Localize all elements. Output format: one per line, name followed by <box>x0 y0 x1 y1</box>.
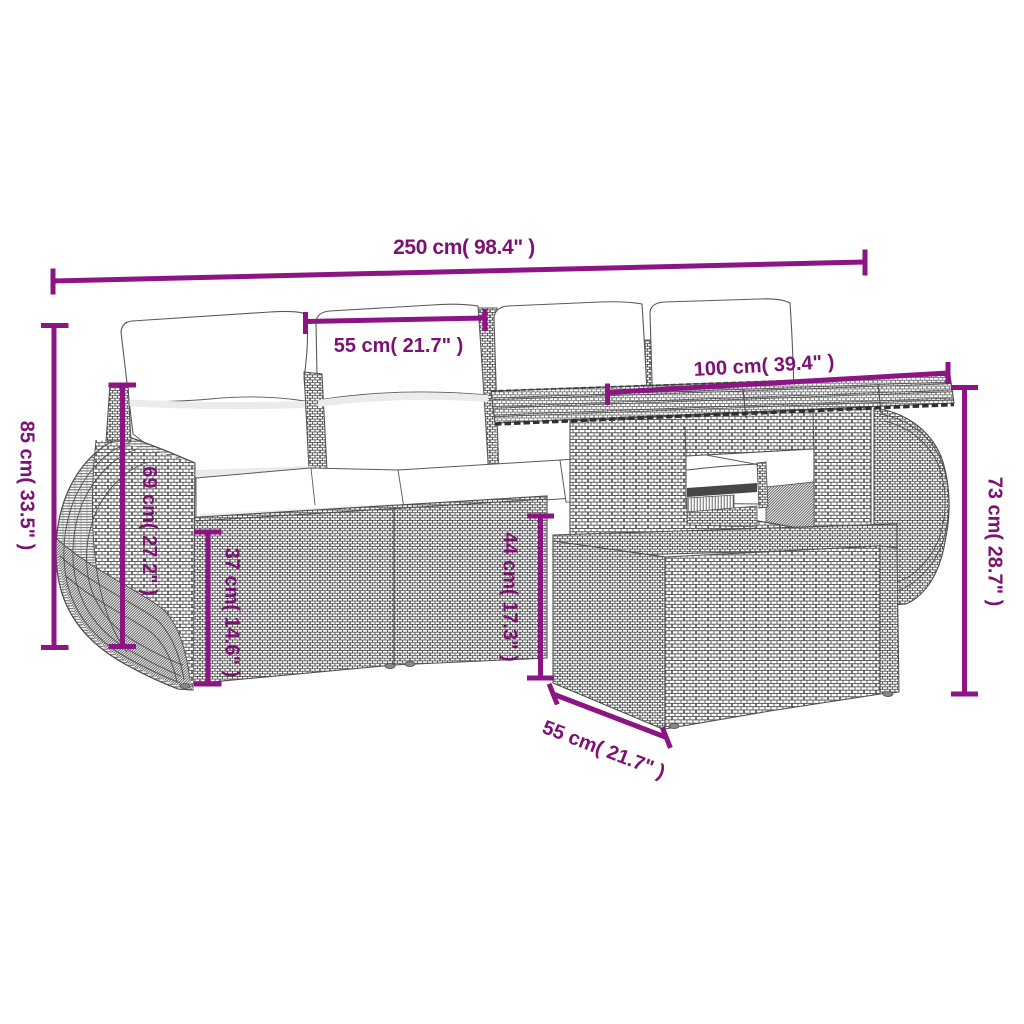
svg-text:250 cm( 98.4" ): 250 cm( 98.4" ) <box>393 236 535 259</box>
svg-text:85 cm( 33.5" ): 85 cm( 33.5" ) <box>16 421 38 551</box>
svg-text:44 cm( 17.3" ): 44 cm( 17.3" ) <box>499 532 521 662</box>
svg-text:73 cm( 28.7" ): 73 cm( 28.7" ) <box>984 477 1006 607</box>
svg-text:69 cm( 27.2" ): 69 cm( 27.2" ) <box>138 466 160 596</box>
svg-text:37 cm( 14.6" ): 37 cm( 14.6" ) <box>221 548 243 678</box>
svg-text:55 cm( 21.7" ): 55 cm( 21.7" ) <box>539 716 668 783</box>
svg-text:55 cm( 21.7" ): 55 cm( 21.7" ) <box>334 335 464 357</box>
